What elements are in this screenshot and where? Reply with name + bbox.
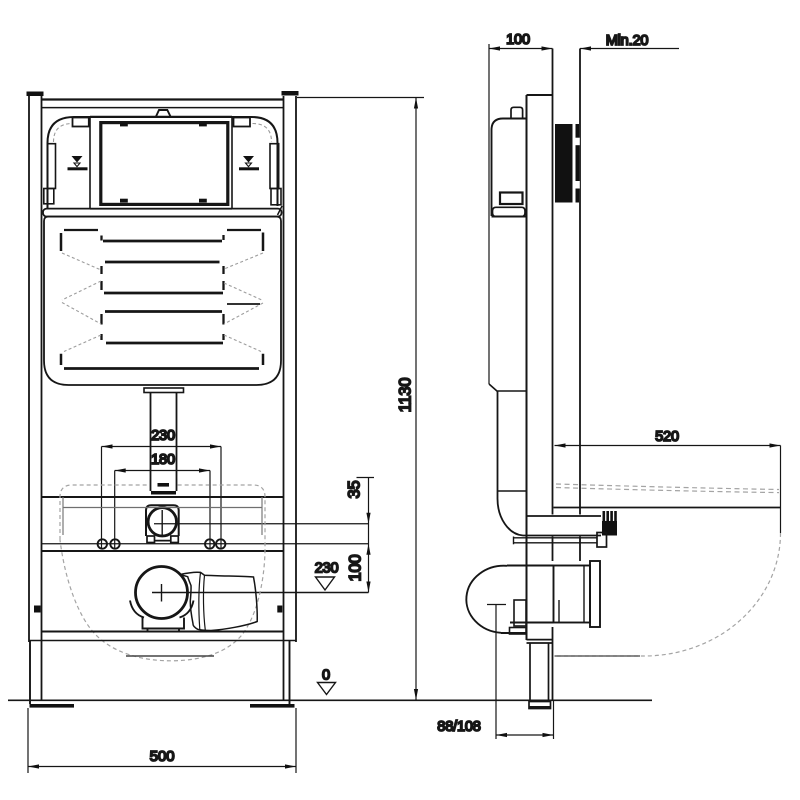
svg-text:500: 500 bbox=[150, 748, 175, 765]
svg-text:0: 0 bbox=[322, 668, 330, 684]
svg-text:100: 100 bbox=[506, 32, 530, 48]
svg-text:520: 520 bbox=[655, 429, 679, 445]
svg-text:35: 35 bbox=[346, 481, 364, 499]
svg-text:Min.20: Min.20 bbox=[606, 33, 649, 49]
svg-text:180: 180 bbox=[151, 452, 175, 468]
svg-text:230: 230 bbox=[315, 561, 339, 577]
svg-text:100: 100 bbox=[347, 555, 365, 582]
svg-text:230: 230 bbox=[151, 428, 175, 444]
svg-text:1130: 1130 bbox=[397, 378, 415, 413]
svg-text:88/108: 88/108 bbox=[437, 719, 481, 735]
